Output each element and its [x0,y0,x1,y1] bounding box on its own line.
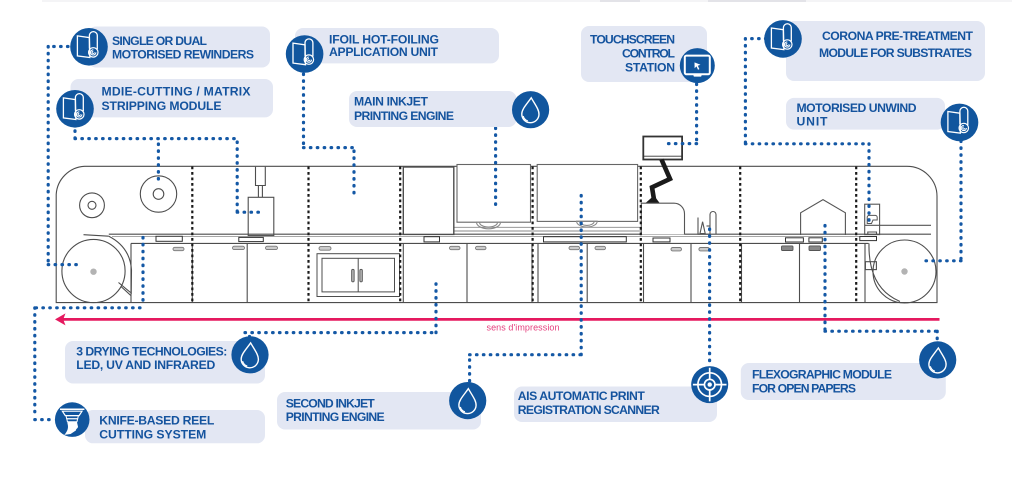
svg-text:PRINTING ENGINE: PRINTING ENGINE [286,410,385,424]
svg-text:CUTTING SYSTEM: CUTTING SYSTEM [99,428,206,442]
svg-text:FOR OPEN PAPERS: FOR OPEN PAPERS [752,382,856,396]
svg-text:MAIN INKJET: MAIN INKJET [354,95,429,109]
svg-text:STATION: STATION [625,61,675,75]
svg-text:MDIE-CUTTING / MATRIX: MDIE-CUTTING / MATRIX [102,85,252,99]
svg-text:STRIPPING MODULE: STRIPPING MODULE [102,99,222,113]
svg-text:PRINTING ENGINE: PRINTING ENGINE [354,109,454,123]
svg-text:TOUCHSCREEN: TOUCHSCREEN [590,32,675,46]
svg-text:SECOND INKJET: SECOND INKJET [286,396,376,410]
svg-text:sens d'impression: sens d'impression [487,323,560,333]
svg-text:MODULE FOR SUBSTRATES: MODULE FOR SUBSTRATES [819,46,972,60]
svg-text:MOTORISED REWINDERS: MOTORISED REWINDERS [112,48,254,62]
svg-text:MOTORISED UNWIND: MOTORISED UNWIND [797,101,917,115]
svg-text:REGISTRATION SCANNER: REGISTRATION SCANNER [518,403,660,417]
svg-text:FLEXOGRAPHIC MODULE: FLEXOGRAPHIC MODULE [752,368,892,382]
svg-text:3 DRYING TECHNOLOGIES:: 3 DRYING TECHNOLOGIES: [76,344,227,358]
svg-text:UNIT: UNIT [797,115,829,129]
svg-text:SINGLE OR DUAL: SINGLE OR DUAL [112,34,208,48]
svg-text:CONTROL: CONTROL [622,47,676,61]
svg-text:LED, UV AND INFRARED: LED, UV AND INFRARED [76,358,215,372]
svg-text:KNIFE-BASED REEL: KNIFE-BASED REEL [99,413,215,427]
svg-text:CORONA PRE-TREATMENT: CORONA PRE-TREATMENT [822,29,974,43]
svg-text:AIS AUTOMATIC PRINT: AIS AUTOMATIC PRINT [518,389,646,403]
svg-text:APPLICATION UNIT: APPLICATION UNIT [329,45,439,59]
